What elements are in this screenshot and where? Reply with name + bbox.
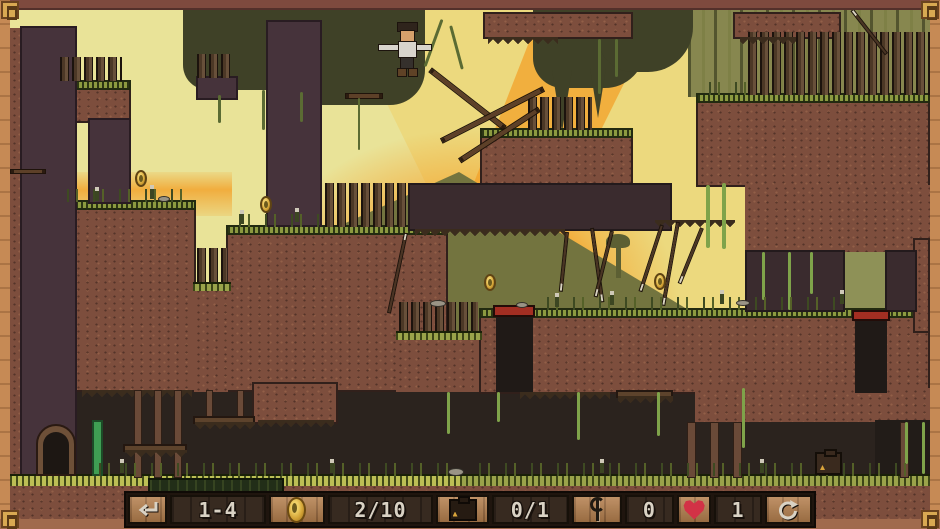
sprout-plant <box>295 208 299 222</box>
frame-corner-ornament <box>1 1 19 19</box>
plants <box>700 82 746 95</box>
trap-shaft <box>855 317 887 393</box>
hanging-block <box>252 382 338 424</box>
plants <box>90 463 450 476</box>
vine <box>657 392 660 436</box>
vine <box>262 90 265 130</box>
plants <box>230 214 325 227</box>
plants <box>470 463 910 476</box>
pit-floor <box>396 331 482 340</box>
red-trap <box>493 305 535 317</box>
coin <box>484 274 496 291</box>
vine <box>615 39 618 77</box>
dark-column <box>266 20 322 227</box>
sprout-plant <box>760 459 764 473</box>
chest-count: 0/1 <box>511 498 550 522</box>
hanging-spikes <box>415 229 565 240</box>
player-arm <box>378 44 400 51</box>
player-boot <box>408 68 418 77</box>
coin-counter-icon-panel <box>269 495 325 524</box>
treasure-chest <box>815 452 842 475</box>
rock <box>736 300 750 306</box>
fence-posts <box>60 57 122 81</box>
vine <box>762 252 765 300</box>
player-arm <box>415 44 432 51</box>
vine <box>905 422 908 464</box>
vine <box>577 392 580 440</box>
lives-count: 1 <box>732 498 745 522</box>
player-boot <box>397 68 407 77</box>
frame-top <box>0 0 940 10</box>
fence-posts <box>197 54 233 78</box>
level-label: 1-4 <box>199 498 238 522</box>
vine <box>497 392 500 422</box>
rock <box>158 196 170 202</box>
frame-left <box>0 0 10 529</box>
red-trap <box>852 310 890 321</box>
level-indicator: 1-4 <box>170 495 266 524</box>
hanging-spikes <box>195 422 255 434</box>
lives-icon-panel <box>677 495 711 524</box>
ledge-stick <box>345 93 383 99</box>
floating-island <box>480 128 633 186</box>
pit-spikes <box>197 248 227 285</box>
vine <box>447 392 450 434</box>
wall-spear <box>10 169 46 174</box>
sapling-counter-icon-panel <box>572 495 622 524</box>
sprout-plant <box>720 290 724 304</box>
sprout-plant <box>840 290 844 304</box>
restart-arrow-icon <box>776 498 800 522</box>
sprout-plant <box>240 210 244 224</box>
vine <box>598 39 601 94</box>
return-arrow-icon <box>136 498 160 522</box>
back-button[interactable] <box>128 495 167 524</box>
vine <box>218 95 221 123</box>
sapling-counter: 0 <box>625 495 674 524</box>
dark-band <box>885 250 917 312</box>
hanging-spikes <box>520 392 610 402</box>
vine <box>810 252 813 294</box>
dark-overhang <box>408 183 672 231</box>
picket-fence <box>325 183 408 227</box>
plants <box>538 297 838 310</box>
chest-counter-icon-panel <box>436 495 489 524</box>
hanging-spikes <box>488 37 558 48</box>
dark-ledge <box>196 76 238 100</box>
vine <box>922 422 925 474</box>
heart-icon <box>683 500 705 520</box>
coin-count: 2/10 <box>354 498 406 522</box>
sprout-plant <box>610 291 614 305</box>
coin <box>135 170 147 187</box>
vine <box>742 388 745 448</box>
tree-silhouette-trunk <box>616 244 621 278</box>
lives-counter: 1 <box>714 495 761 524</box>
ceiling-platform <box>483 12 633 39</box>
bamboo-stalk <box>706 185 710 248</box>
sprout-plant <box>95 187 99 201</box>
pit-wall <box>194 288 228 392</box>
hill-through-window <box>845 250 885 312</box>
dark-wall <box>20 26 77 478</box>
platform <box>695 388 930 422</box>
coin-counter: 2/10 <box>328 495 433 524</box>
platform <box>745 185 930 252</box>
rock <box>516 302 528 308</box>
sapling-count: 0 <box>643 498 656 522</box>
hanging-spikes <box>125 450 187 462</box>
bamboo-stalk <box>722 183 726 249</box>
player-torso <box>398 41 417 58</box>
hanging-spikes <box>258 420 334 432</box>
hanging-rope <box>358 98 360 150</box>
sprout-plant <box>150 185 154 199</box>
hud-bar: 1-4 2/10 0/1 0 1 <box>124 491 816 528</box>
pit-floor <box>193 282 231 291</box>
sprout-plant <box>555 293 559 307</box>
chest-icon <box>449 499 477 521</box>
hanging-spikes <box>740 37 796 48</box>
platform <box>396 334 482 392</box>
hanging-spikes <box>618 396 673 408</box>
frame-right <box>930 0 940 529</box>
frame-corner-ornament <box>921 510 939 528</box>
platform <box>696 93 930 187</box>
player-character <box>378 22 432 82</box>
sprout-plant <box>330 459 334 473</box>
rock <box>448 468 464 476</box>
vine <box>300 92 303 122</box>
coin-icon <box>287 497 306 523</box>
rock <box>430 300 446 307</box>
sprout-plant <box>120 459 124 473</box>
frame-corner-ornament <box>921 1 939 19</box>
restart-button[interactable] <box>765 495 812 524</box>
frame-corner-ornament <box>1 510 19 528</box>
sprout-plant <box>600 459 604 473</box>
trap-shaft <box>496 313 533 392</box>
coin <box>260 196 272 213</box>
coin <box>654 273 666 290</box>
level-door-opening <box>43 432 69 474</box>
sapling-icon <box>589 497 605 523</box>
chest-counter: 0/1 <box>492 495 569 524</box>
game-screen: 1-4 2/10 0/1 0 1 <box>0 0 940 529</box>
plants <box>58 189 193 202</box>
